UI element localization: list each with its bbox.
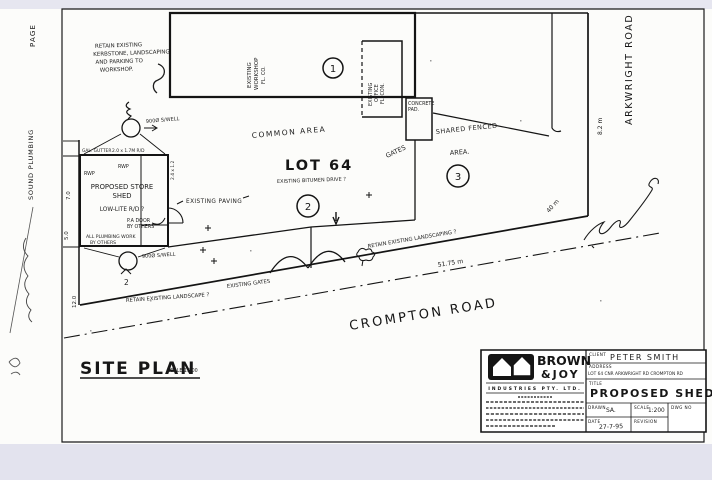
address-value: LOT 64 CNR ARKWRIGHT RD CROMPTON RD [588,371,684,377]
pa-door-note-1: P.A DOOR [127,218,151,224]
address-label: ADDRESS [589,364,612,369]
workshop-label-1: EXISTING [247,62,253,88]
soakwell-number: 2 [124,278,129,287]
fenced-label-2: AREA. [450,148,470,157]
brand-name-bottom: &JOY [541,368,580,381]
roller-door-dim-2: 2.4 x 1.2 [170,160,176,180]
pad-label-2: PAD. [408,107,419,113]
fax-sender-label: SOUND PLUMBING [27,129,35,200]
dim-west-c: 12.0 [72,295,78,308]
dim-west-b: 5.0 [64,231,70,240]
marker-1: 1 [330,64,336,75]
roller-door-dim: 2.0 x 1.7M R/D [112,148,145,154]
revision-label: REVISION [634,419,657,424]
date-value: 27-7-95 [599,423,623,431]
marker-3: 3 [455,172,461,183]
title-value: PROPOSED SHED [590,387,712,400]
site-plan-scan: PAGE SOUND PLUMBING RETAIN EXISTING KERB… [0,0,712,480]
lot-number: LOT 64 [285,158,353,174]
workshop-label-2: WORKSHOP [254,57,260,90]
pad-label-1: CONCRETE [408,101,434,107]
fax-page-label: PAGE [29,24,37,47]
rwp-label-b: RWP [118,164,129,170]
office-label-3: FL. CON. [380,83,386,104]
plumbing-note-2: BY OTHERS [90,240,116,246]
brand-name-top: BROWN [537,353,591,368]
arkwright-road-label: ARKWRIGHT ROAD [624,14,635,125]
dim-west-a: 7.0 [66,191,72,200]
scan-edge-bottom [0,444,712,480]
site-plan-scale: SCALE 1:200 [167,368,198,374]
marker-2: 2 [305,202,311,213]
workshop-label-3: FL. CO. [261,66,267,84]
existing-paving-label: EXISTING PAVING [186,199,242,205]
title-label: TITLE [588,381,602,386]
client-value: PETER SMITH [610,353,680,362]
shed-label-3: LOW-LITE R/D ? [100,207,145,213]
kerb-note-line4: WORKSHOP. [100,67,134,74]
client-label: CLIENT [589,352,606,357]
pa-door-note-2: BY OTHERS [127,224,154,230]
drawn-value: SA. [606,407,616,414]
industries-line: INDUSTRIES PTY. LTD. [488,386,582,392]
scale-value: 1:200 [648,408,665,414]
drawn-label: DRAWN [588,405,606,410]
drawing-title: SITE PLAN SCALE 1:200 [80,359,200,379]
title-block: BROWN &JOY INDUSTRIES PTY. LTD. CLIENT P… [481,350,712,432]
plumbing-note-1: ALL PLUMBING WORK [86,234,136,240]
shed-label-1: PROPOSED STORE [91,183,153,191]
dwg-no-label: DWG NO [671,405,692,410]
rwp-label-a: RWP [84,171,95,177]
shed-label-2: SHED [113,192,132,200]
scan-edge-top [0,0,712,9]
office-label-2: OFFICE [374,84,380,102]
dim-east: 8.2 m [597,118,604,135]
